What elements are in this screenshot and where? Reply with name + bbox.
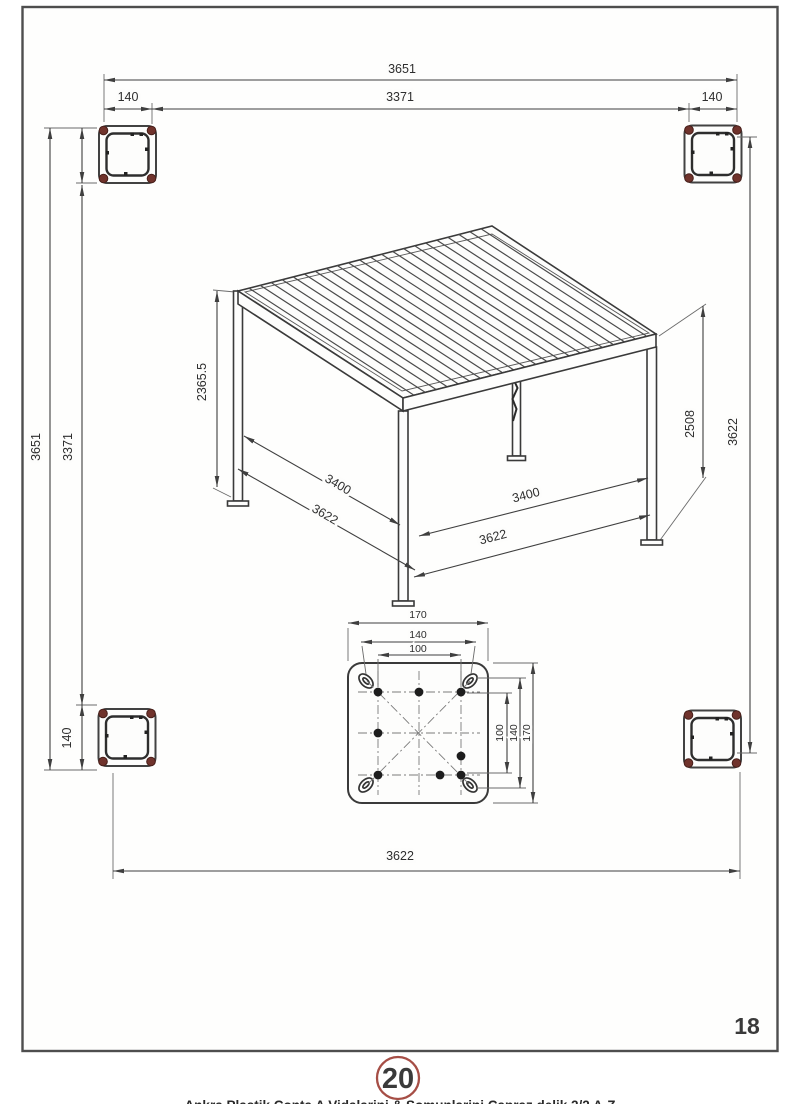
- page-number: 18: [734, 1013, 760, 1039]
- dim-bottom-span: 3622: [386, 849, 414, 863]
- dim-right-span: 3622: [726, 418, 740, 446]
- dim-top-total: 3651: [388, 62, 416, 76]
- dim-left-inner: 3371: [61, 433, 75, 461]
- step-badge-number: 20: [382, 1063, 414, 1095]
- dim-left-bottom-offset: 140: [60, 728, 74, 749]
- step-badge: 20: [377, 1057, 419, 1099]
- dim-top-right-offset: 140: [702, 90, 723, 104]
- footer-caption-clipped: Ankra Plastik Conta A Vidalarini & Somun…: [184, 1098, 615, 1104]
- pergola-front-post: [399, 411, 409, 601]
- dim-top-left-offset: 140: [118, 90, 139, 104]
- dim-plate-right-inner: 100: [494, 724, 506, 742]
- dim-plate-top-outer: 170: [409, 609, 427, 621]
- pergola-right-post: [647, 347, 657, 540]
- dim-plate-top-mid: 140: [409, 629, 427, 641]
- footing-top-right: [685, 126, 742, 183]
- footing-top-left: [99, 126, 156, 183]
- dim-plate-right-mid: 140: [508, 724, 520, 742]
- technical-drawing: 3651 140 3371 140 3651 3371 140 3622 362…: [0, 0, 800, 1104]
- dim-top-inner: 3371: [386, 90, 414, 104]
- drawing-page: 3651 140 3371 140 3651 3371 140 3622 362…: [0, 0, 800, 1104]
- dim-post-height: 2508: [683, 410, 697, 438]
- dim-left-total: 3651: [29, 433, 43, 461]
- dim-plate-top-inner: 100: [409, 643, 427, 655]
- dim-pergola-height: 2365.5: [195, 363, 209, 401]
- footing-bottom-right: [684, 711, 741, 768]
- dim-plate-right-outer: 170: [521, 724, 533, 742]
- footing-bottom-left: [99, 709, 156, 766]
